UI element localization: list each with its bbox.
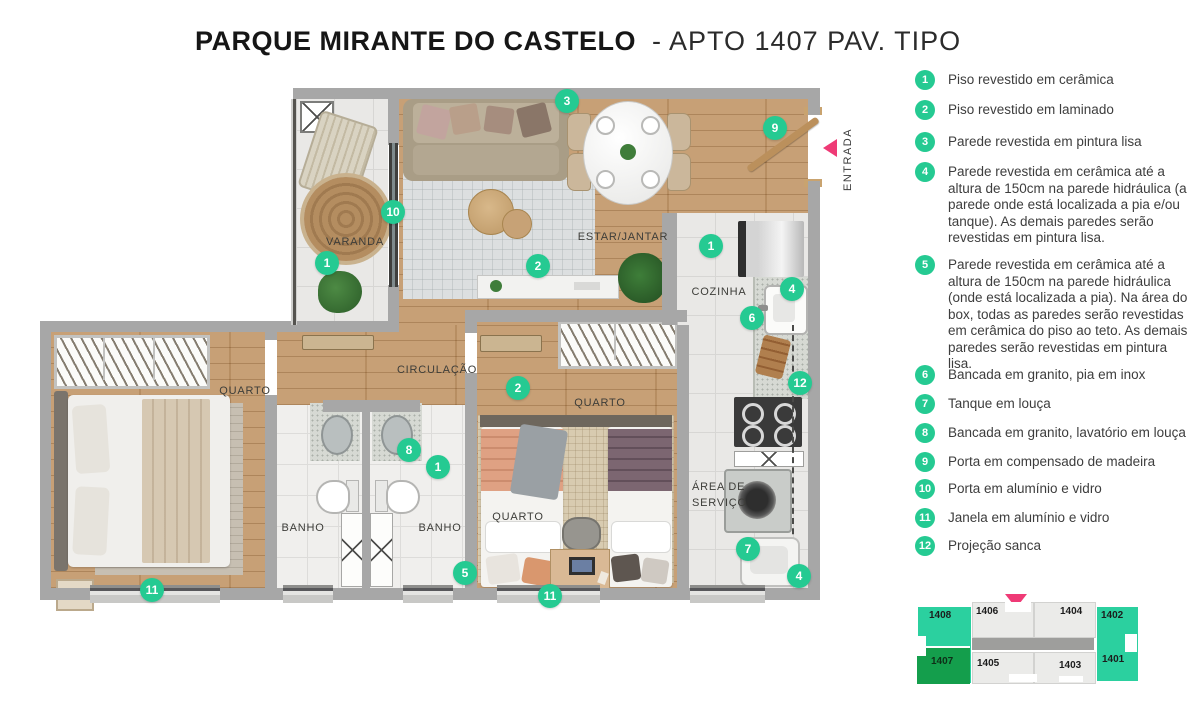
sofa-pillow — [449, 103, 481, 135]
fridge — [738, 221, 804, 277]
keyplan-corridor — [972, 638, 1094, 650]
legend-item: 11Janela em alumínio e vidro — [915, 508, 1200, 528]
legend-text: Parede revestida em cerâmica até a altur… — [948, 257, 1193, 373]
keyplan-num-1405: 1405 — [977, 658, 999, 669]
keyplan-notch — [1005, 602, 1031, 612]
legend-badge: 12 — [915, 536, 935, 556]
plan-marker-2b: 2 — [506, 376, 530, 400]
project-name: PARQUE MIRANTE DO CASTELO — [195, 26, 636, 56]
sideboard-plant — [490, 280, 502, 292]
keyplan-num-1401: 1401 — [1102, 654, 1124, 665]
blanket-plum — [608, 429, 672, 491]
legend-item: 12Projeção sanca — [915, 536, 1200, 556]
legend-item: 10Porta em alumínio e vidro — [915, 479, 1200, 499]
plan-marker-3: 3 — [555, 89, 579, 113]
laptop — [569, 557, 595, 575]
room-label-varanda: VARANDA — [326, 236, 384, 248]
sofa-seat — [413, 145, 559, 175]
plan-marker-7: 7 — [736, 537, 760, 561]
entrance-arrow-icon — [823, 139, 837, 157]
keyplan-notch — [1059, 676, 1083, 682]
legend-badge: 9 — [915, 452, 935, 472]
window — [690, 585, 765, 603]
toilet-bowl — [386, 480, 420, 514]
sideboard — [477, 275, 619, 299]
dining-table — [583, 101, 673, 205]
legend-item: 2Piso revestido em laminado — [915, 100, 1200, 120]
blanket — [142, 399, 210, 563]
plan-marker-1b: 1 — [699, 234, 723, 258]
wall — [465, 310, 477, 333]
legend-badge: 1 — [915, 70, 935, 90]
room-label-quarto-3: QUARTO — [492, 511, 543, 523]
plan-marker-9: 9 — [763, 116, 787, 140]
room-label-quarto-2: QUARTO — [574, 397, 625, 409]
legend-item: 6Bancada em granito, pia em inox — [915, 365, 1200, 385]
entrance-label: ENTRADA — [842, 105, 854, 191]
legend-item: 3Parede revestida em pintura lisa — [915, 132, 1200, 152]
wall — [265, 332, 277, 340]
pillow — [72, 404, 111, 474]
plate — [641, 170, 660, 189]
room-label-banho-1: BANHO — [281, 522, 324, 534]
headboard — [54, 391, 68, 571]
room-label-area-servico: ÁREA DE SERVIÇO — [692, 479, 754, 511]
plan-marker-6: 6 — [740, 306, 764, 330]
toilet-bowl — [316, 480, 350, 514]
keyplan-num-1403: 1403 — [1059, 660, 1081, 671]
round-rug — [304, 177, 388, 261]
plan-marker-8: 8 — [397, 438, 421, 462]
room-label-estar-jantar: ESTAR/JANTAR — [578, 231, 668, 243]
closet — [54, 335, 210, 389]
legend-text: Bancada em granito, lavatório em louça — [948, 425, 1193, 442]
wall — [662, 213, 677, 325]
wall — [808, 181, 820, 600]
single-bed-2 — [608, 427, 672, 587]
legend-text: Piso revestido em laminado — [948, 102, 1193, 119]
plan-marker-2a: 2 — [526, 254, 550, 278]
cushion — [640, 557, 669, 585]
wall — [323, 400, 420, 412]
wall — [362, 412, 370, 588]
pillow — [72, 486, 110, 556]
double-bed — [54, 391, 232, 571]
plan-marker-12: 12 — [788, 371, 812, 395]
window — [403, 585, 453, 603]
room-label-quarto-1: QUARTO — [219, 385, 270, 397]
closet-divider — [614, 324, 616, 360]
cushion — [611, 553, 642, 582]
legend-badge: 11 — [915, 508, 935, 528]
legend-item: 7Tanque em louça — [915, 394, 1200, 414]
legend-text: Bancada em granito, pia em inox — [948, 367, 1193, 384]
wall — [40, 321, 399, 332]
pillow — [611, 521, 671, 553]
plan-marker-11b: 11 — [538, 584, 562, 608]
shower-box-left — [341, 513, 364, 587]
legend-text: Janela em alumínio e vidro — [948, 510, 1193, 527]
burner — [742, 425, 764, 447]
plan-marker-10: 10 — [381, 200, 405, 224]
legend-badge: 5 — [915, 255, 935, 275]
window — [283, 585, 333, 603]
keyplan-notch — [913, 636, 926, 656]
legend-text: Parede revestida em cerâmica até a altur… — [948, 164, 1193, 247]
entry-hall-floor — [677, 99, 808, 213]
laptop-screen — [572, 560, 592, 572]
floor-plan: VARANDA ESTAR/JANTAR COZINHA CIRCULAÇÃO … — [40, 85, 875, 620]
legend-item: 8Bancada em granito, lavatório em louça — [915, 423, 1200, 443]
plan-marker-4a: 4 — [780, 277, 804, 301]
wall — [388, 99, 399, 145]
floorplan-page: PARQUE MIRANTE DO CASTELO- APTO 1407 PAV… — [0, 0, 1200, 719]
legend-text: Tanque em louça — [948, 396, 1193, 413]
wall — [388, 285, 399, 332]
legend-text: Piso revestido em cerâmica — [948, 72, 1193, 89]
plate — [596, 116, 615, 135]
room-label-circulacao: CIRCULAÇÃO — [397, 364, 477, 376]
legend-item: 9Porta em compensado de madeira — [915, 452, 1200, 472]
wall — [465, 310, 687, 322]
plan-marker-1c: 1 — [426, 455, 450, 479]
page-title: PARQUE MIRANTE DO CASTELO- APTO 1407 PAV… — [195, 26, 961, 57]
wall — [465, 373, 477, 588]
plan-marker-1a: 1 — [315, 251, 339, 275]
wall — [40, 321, 51, 600]
legend-badge: 7 — [915, 394, 935, 414]
wall — [808, 88, 820, 115]
toilet-left — [314, 477, 358, 513]
legend-badge: 8 — [915, 423, 935, 443]
legend-text: Porta em compensado de madeira — [948, 454, 1193, 471]
table-centerpiece — [620, 144, 636, 160]
legend-badge: 2 — [915, 100, 935, 120]
plan-marker-4b: 4 — [787, 564, 811, 588]
plant-living — [618, 253, 666, 303]
sofa-pillow — [483, 105, 514, 135]
legend-badge: 6 — [915, 365, 935, 385]
desk-chair — [562, 517, 601, 551]
legend-item: 5Parede revestida em cerâmica até a altu… — [915, 255, 1200, 373]
keyplan-num-1402: 1402 — [1101, 610, 1123, 621]
keyplan-num-1404: 1404 — [1060, 606, 1082, 617]
legend-badge: 10 — [915, 479, 935, 499]
legend-badge: 4 — [915, 162, 935, 182]
desk — [550, 549, 610, 589]
closet-divider — [153, 338, 155, 380]
closet-divider — [103, 338, 105, 380]
legend-text: Projeção sanca — [948, 538, 1193, 555]
keyplan-num-1408: 1408 — [929, 610, 951, 621]
legend-item: 1Piso revestido em cerâmica — [915, 70, 1200, 90]
legend-text: Parede revestida em pintura lisa — [948, 134, 1193, 151]
legend-text: Porta em alumínio e vidro — [948, 481, 1193, 498]
plate — [641, 116, 660, 135]
sink-left — [321, 415, 353, 455]
closet-2 — [558, 321, 678, 369]
desk-item — [597, 571, 609, 585]
apartment-subtitle: - APTO 1407 PAV. TIPO — [652, 26, 961, 56]
key-plan: 1408 1406 1404 1402 1407 1405 1403 1401 — [913, 592, 1143, 692]
wall — [677, 325, 689, 588]
keyplan-num-1406: 1406 — [976, 606, 998, 617]
coffee-table-small — [502, 209, 532, 239]
door-leaf-open — [480, 335, 542, 352]
cushion — [485, 553, 521, 585]
keyplan-notch — [1125, 634, 1137, 652]
shower-box-right — [370, 513, 393, 587]
keyplan-num-1407: 1407 — [931, 656, 953, 667]
headboard-panel — [480, 415, 672, 427]
wall — [265, 395, 277, 588]
plate — [596, 170, 615, 189]
sideboard-decor — [574, 282, 600, 290]
room-label-banho-2: BANHO — [418, 522, 461, 534]
room-label-cozinha: COZINHA — [691, 286, 746, 298]
toilet-right — [374, 477, 418, 513]
keyplan-notch — [1009, 674, 1037, 682]
balcony-rail — [293, 99, 296, 325]
burner — [742, 403, 764, 425]
sofa — [403, 99, 569, 181]
plan-marker-11a: 11 — [140, 578, 164, 602]
legend-badge: 3 — [915, 132, 935, 152]
legend-item: 4Parede revestida em cerâmica até a altu… — [915, 162, 1200, 247]
door-leaf-open — [302, 335, 374, 350]
plan-marker-5: 5 — [453, 561, 477, 585]
